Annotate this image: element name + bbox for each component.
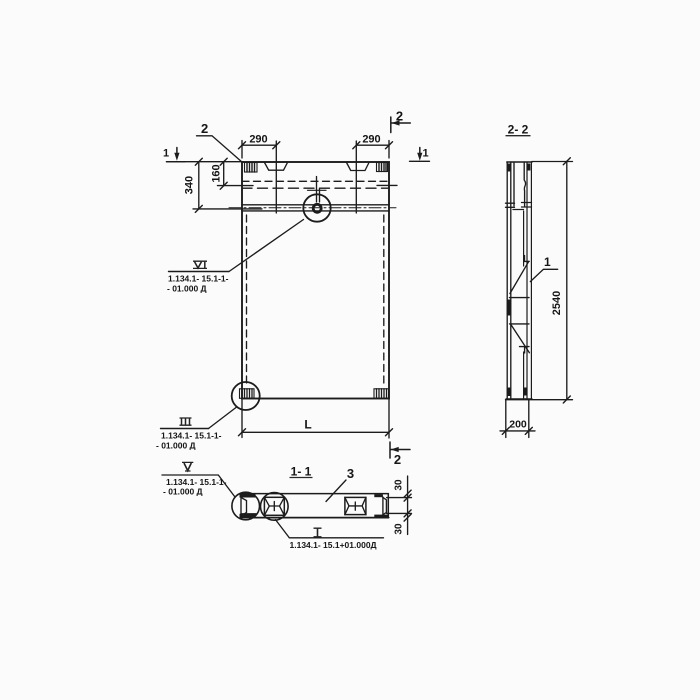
svg-text:2: 2 <box>201 121 208 136</box>
svg-text:1.134.1- 15.1-1-: 1.134.1- 15.1-1- <box>161 431 222 441</box>
svg-text:2: 2 <box>394 452 401 467</box>
svg-text:2- 2: 2- 2 <box>508 123 529 137</box>
svg-text:200: 200 <box>509 419 527 431</box>
svg-text:L: L <box>304 418 311 432</box>
svg-text:- 01.000 Д: - 01.000 Д <box>156 441 196 451</box>
svg-text:1.134.1- 15.1-1-: 1.134.1- 15.1-1- <box>166 477 227 487</box>
svg-text:340: 340 <box>184 176 196 194</box>
svg-text:160: 160 <box>211 164 223 182</box>
svg-text:2540: 2540 <box>551 291 563 315</box>
svg-text:1.134.1- 15.1-1-: 1.134.1- 15.1-1- <box>168 274 229 284</box>
svg-text:1: 1 <box>163 148 169 160</box>
svg-text:290: 290 <box>249 134 267 146</box>
svg-text:1- 1: 1- 1 <box>291 465 312 479</box>
svg-text:- 01.000 Д: - 01.000 Д <box>167 284 207 294</box>
svg-text:1: 1 <box>544 255 551 269</box>
svg-text:1: 1 <box>422 148 428 160</box>
svg-text:2: 2 <box>396 109 403 124</box>
svg-text:1.134.1- 15.1+01.000Д: 1.134.1- 15.1+01.000Д <box>290 540 377 550</box>
svg-text:- 01.000 Д: - 01.000 Д <box>163 487 203 497</box>
svg-text:30: 30 <box>394 479 405 491</box>
svg-text:30: 30 <box>394 523 405 535</box>
svg-text:3: 3 <box>347 466 354 481</box>
svg-text:290: 290 <box>362 134 380 146</box>
